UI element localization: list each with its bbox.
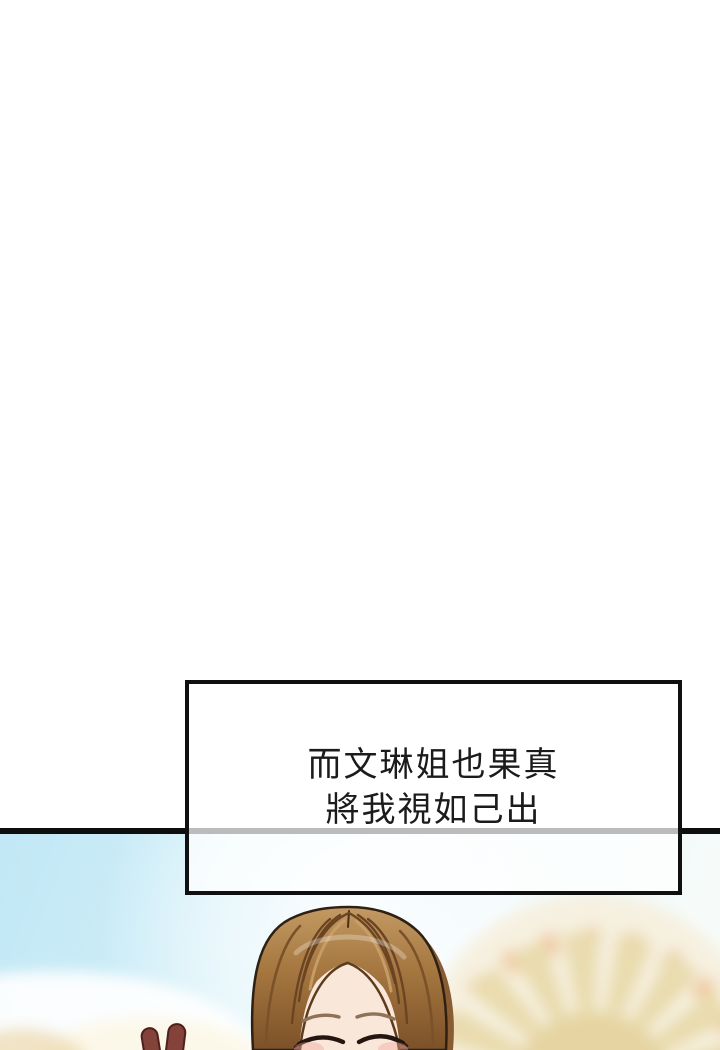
narration-line-1: 而文琳姐也果真 <box>308 745 560 785</box>
narration-line-2: 將我視如己出 <box>326 790 542 830</box>
comic-page: 而文琳姐也果真 將我視如己出 <box>0 0 720 1050</box>
narration-box: 而文琳姐也果真 將我視如己出 <box>185 680 682 895</box>
